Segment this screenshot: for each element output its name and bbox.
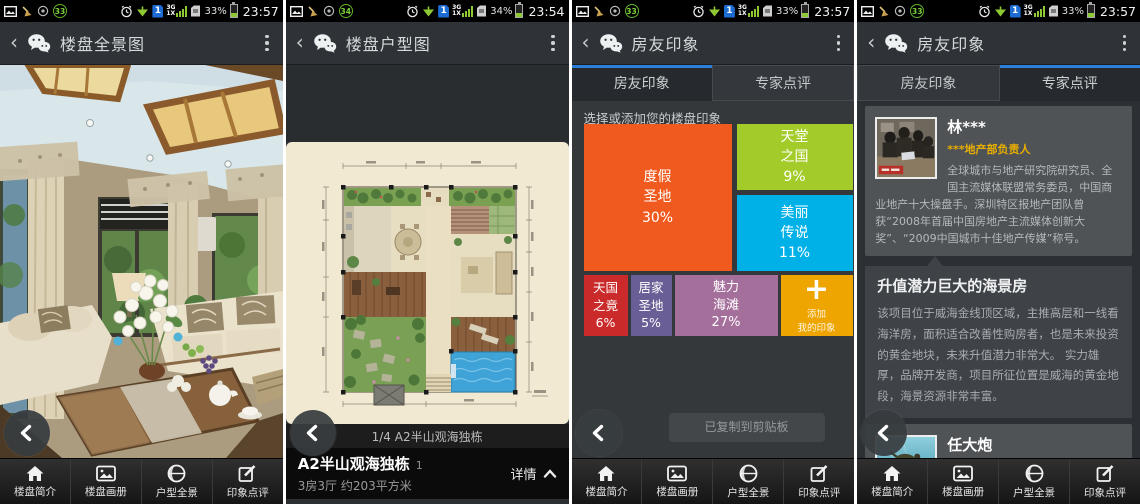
memory-badge: 33 <box>625 4 639 18</box>
sim1-badge-icon: 1 <box>438 5 449 18</box>
clean-broom-icon <box>878 5 890 17</box>
wifi-icon <box>422 6 435 17</box>
sim1-badge-icon: 1 <box>1010 5 1021 18</box>
title-bar: ‹ 房友印象 <box>572 22 855 65</box>
gallery-icon <box>96 465 116 482</box>
nav-item-panorama[interactable]: 户型全景 <box>713 459 784 504</box>
nav-item-album[interactable]: 楼盘画册 <box>642 459 713 504</box>
unit-name: A2半山观海独栋 <box>298 455 410 473</box>
tile-meilihaitan[interactable]: 魅力海滩27% <box>675 275 778 336</box>
title-bar: ‹ 楼盘户型图 <box>286 22 569 65</box>
title-bar: ‹ 房友印象 <box>857 22 1140 65</box>
tab-impressions[interactable]: 房友印象 <box>572 65 712 101</box>
tile-add-impression[interactable]: + 添加我的印象 <box>781 275 853 336</box>
floating-back-button[interactable] <box>290 410 336 456</box>
clock-time: 23:57 <box>814 4 850 19</box>
wechat-logo-icon <box>27 33 51 53</box>
tile-meilichuanshuo[interactable]: 美丽传说11% <box>737 195 853 271</box>
status-bar: 33 1 3G1X 33% 23:57 <box>857 0 1140 22</box>
unit-detail-bar: A2半山观海独栋1 3房3厅 约203平方米 详情 <box>286 448 569 499</box>
nav-item-intro[interactable]: 楼盘简介 <box>572 459 643 504</box>
tab-expert-reviews[interactable]: 专家点评 <box>712 65 854 101</box>
tile-tiantangzhiguo[interactable]: 天堂之国9% <box>737 124 853 190</box>
panorama-globe-icon <box>1025 464 1044 483</box>
bottom-nav: 楼盘简介 楼盘画册 户型全景 印象点评 <box>0 458 283 504</box>
compose-icon <box>238 464 257 483</box>
expert-photo <box>875 117 937 179</box>
review-block: 升值潜力巨大的海景房 该项目位于威海金线顶区域，主推高层和一线看海洋房，面积适合… <box>865 266 1132 417</box>
wechat-logo-icon <box>599 33 623 53</box>
page-title: 房友印象 <box>917 31 1109 55</box>
compose-icon <box>1096 464 1115 483</box>
back-chevron-icon <box>303 423 323 443</box>
wechat-logo-icon <box>313 33 337 53</box>
memory-badge: 33 <box>53 4 67 18</box>
tab-bar: 房友印象 专家点评 <box>572 65 855 101</box>
tile-dujiashengdi[interactable]: 度假圣地30% <box>584 124 732 271</box>
memory-badge: 34 <box>339 4 353 18</box>
home-icon <box>25 465 45 482</box>
floating-back-button[interactable] <box>861 410 907 456</box>
battery-icon <box>230 4 238 18</box>
record-icon <box>323 5 335 17</box>
nav-item-album[interactable]: 楼盘画册 <box>71 459 142 504</box>
screen-floorplan: 34 1 3G1X 34% 23:54 ‹ 楼盘户型图 <box>286 0 569 504</box>
battery-percent: 33% <box>776 6 798 17</box>
screen-expert-reviews: 33 1 3G1X 33% 23:57 ‹ 房友印象 房友印象 <box>857 0 1140 504</box>
sim1-badge-icon: 1 <box>152 5 163 18</box>
network-3g1x-icon: 3G1X <box>738 5 759 17</box>
bottom-nav: 楼盘简介 楼盘画册 户型全景 印象点评 <box>857 458 1140 504</box>
page-title: 楼盘户型图 <box>346 31 538 55</box>
panorama-globe-icon <box>167 464 186 483</box>
nav-item-review[interactable]: 印象点评 <box>784 459 854 504</box>
battery-icon <box>515 4 523 18</box>
alarm-icon <box>978 5 991 18</box>
clock-time: 23:57 <box>243 4 279 19</box>
sdcard-icon <box>1048 5 1059 17</box>
back-chevron-icon[interactable]: ‹ <box>10 32 18 52</box>
status-bar: 33 1 3G1X 33% 23:57 <box>0 0 283 22</box>
tab-expert-reviews[interactable]: 专家点评 <box>1000 65 1140 101</box>
chevron-up-icon <box>543 469 557 478</box>
overflow-menu-icon[interactable] <box>833 29 845 58</box>
battery-icon <box>1087 4 1095 18</box>
network-3g1x-icon: 3G1X <box>166 5 187 17</box>
bottom-strip <box>286 499 569 504</box>
page-title: 楼盘全景图 <box>60 31 252 55</box>
record-icon <box>894 5 906 17</box>
sdcard-icon <box>476 5 487 17</box>
gallery-notification-icon <box>290 6 303 17</box>
wechat-logo-icon <box>884 33 908 53</box>
nav-item-intro[interactable]: 楼盘简介 <box>0 459 71 504</box>
record-icon <box>609 5 621 17</box>
unit-spec: 3房3厅 约203平方米 <box>298 477 423 494</box>
title-bar: ‹ 楼盘全景图 <box>0 22 283 65</box>
overflow-menu-icon[interactable] <box>547 29 559 58</box>
battery-icon <box>801 4 809 18</box>
expert-panel: 林*** ***地产部负责人 全球城市与地产研究院研究员、全国主流媒体联盟常务委… <box>857 101 1140 458</box>
back-chevron-icon[interactable]: ‹ <box>582 32 590 52</box>
overflow-menu-icon[interactable] <box>261 29 273 58</box>
screen-impressions: 33 1 3G1X 33% 23:57 ‹ 房友印象 房友印象 <box>572 0 855 504</box>
memory-badge: 33 <box>910 4 924 18</box>
expert-card[interactable]: 林*** ***地产部负责人 全球城市与地产研究院研究员、全国主流媒体联盟常务委… <box>865 106 1132 256</box>
back-chevron-icon[interactable]: ‹ <box>867 32 875 52</box>
gallery-icon <box>667 465 687 482</box>
floorplan-image[interactable] <box>286 142 569 424</box>
back-chevron-icon <box>874 423 894 443</box>
back-chevron-icon <box>589 423 609 443</box>
gallery-notification-icon <box>861 6 874 17</box>
network-3g1x-icon: 3G1X <box>1024 5 1045 17</box>
overflow-menu-icon[interactable] <box>1119 29 1131 58</box>
record-icon <box>37 5 49 17</box>
home-icon <box>882 465 902 482</box>
impression-treemap: 度假圣地30% 天堂之国9% 美丽传说11% 天国之竟6% 居家圣地5% 魅力海… <box>584 124 853 336</box>
nav-item-review[interactable]: 印象点评 <box>213 459 283 504</box>
gallery-notification-icon <box>576 6 589 17</box>
compose-icon <box>810 464 829 483</box>
floating-back-button[interactable] <box>4 410 50 456</box>
tile-jujiashengdi[interactable]: 居家圣地5% <box>631 275 672 336</box>
nav-item-album[interactable]: 楼盘画册 <box>928 459 999 504</box>
battery-percent: 33% <box>1062 6 1084 17</box>
nav-item-review[interactable]: 印象点评 <box>1070 459 1140 504</box>
page-title: 房友印象 <box>632 31 824 55</box>
clock-time: 23:57 <box>1100 4 1136 19</box>
floating-back-button[interactable] <box>576 410 622 456</box>
clock-time: 23:54 <box>528 4 564 19</box>
sim1-badge-icon: 1 <box>724 5 735 18</box>
tab-bar: 房友印象 专家点评 <box>857 65 1140 101</box>
back-chevron-icon <box>17 423 37 443</box>
nav-item-panorama[interactable]: 户型全景 <box>999 459 1070 504</box>
clean-broom-icon <box>307 5 319 17</box>
clean-broom-icon <box>21 5 33 17</box>
gallery-icon <box>953 465 973 482</box>
alarm-icon <box>692 5 705 18</box>
wifi-icon <box>136 6 149 17</box>
home-icon <box>596 465 616 482</box>
panorama-photo[interactable] <box>0 65 283 458</box>
wifi-icon <box>708 6 721 17</box>
alarm-icon <box>120 5 133 18</box>
battery-percent: 34% <box>490 6 512 17</box>
clipboard-toast: 已复制到剪贴板 <box>669 413 825 442</box>
network-3g1x-icon: 3G1X <box>452 5 473 17</box>
review-title: 升值潜力巨大的海景房 <box>877 275 1120 296</box>
unit-index: 1 <box>416 459 423 472</box>
tile-tianguozhijing[interactable]: 天国之竟6% <box>584 275 628 336</box>
four-screen-montage: 33 1 3G1X 33% 23:57 ‹ 楼盘全景图 <box>0 0 1140 504</box>
review-body: 该项目位于威海金线顶区域，主推高层和一线看海洋房，面积适合改善性购房者，也是未来… <box>877 303 1120 406</box>
gallery-notification-icon <box>4 6 17 17</box>
back-chevron-icon[interactable]: ‹ <box>296 32 304 52</box>
tab-impressions[interactable]: 房友印象 <box>857 65 999 101</box>
battery-percent: 33% <box>204 6 226 17</box>
sdcard-icon <box>762 5 773 17</box>
screen-panorama: 33 1 3G1X 33% 23:57 ‹ 楼盘全景图 <box>0 0 283 504</box>
bottom-nav: 楼盘简介 楼盘画册 户型全景 印象点评 <box>572 458 855 504</box>
nav-item-panorama[interactable]: 户型全景 <box>142 459 213 504</box>
speech-pointer <box>927 256 943 266</box>
plan-background <box>286 65 569 142</box>
sdcard-icon <box>190 5 201 17</box>
detail-toggle[interactable]: 详情 <box>510 464 556 483</box>
wifi-icon <box>994 6 1007 17</box>
panorama-globe-icon <box>739 464 758 483</box>
status-bar: 33 1 3G1X 33% 23:57 <box>572 0 855 22</box>
plus-icon: + <box>804 275 829 305</box>
clean-broom-icon <box>593 5 605 17</box>
nav-item-intro[interactable]: 楼盘简介 <box>857 459 928 504</box>
alarm-icon <box>406 5 419 18</box>
status-bar: 34 1 3G1X 34% 23:54 <box>286 0 569 22</box>
